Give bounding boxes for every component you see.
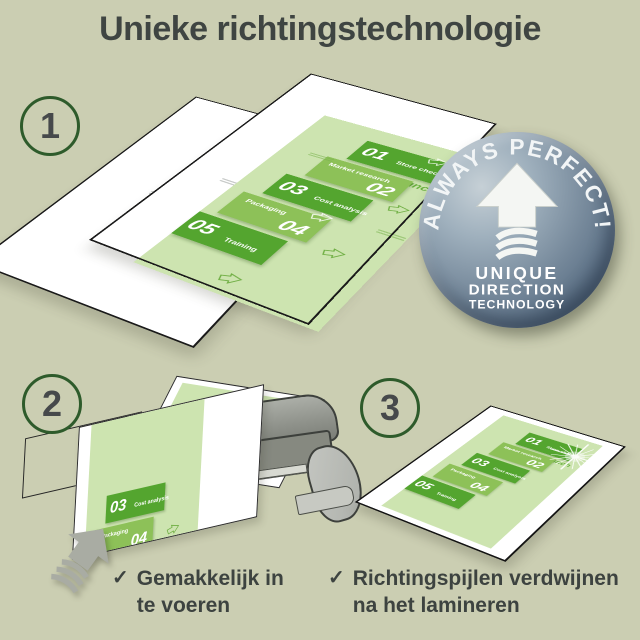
- always-perfect-badge: ALWAYS PERFECT! UNIQUE DIRECTION TECHNOL…: [419, 132, 615, 328]
- step-3-number: 3: [380, 387, 400, 429]
- project-flyer-laminated: Launch 01 Store check Market research 02…: [381, 415, 602, 548]
- badge-graphic: ALWAYS PERFECT! UNIQUE DIRECTION TECHNOL…: [419, 132, 615, 328]
- badge-line-direction: DIRECTION: [469, 282, 566, 299]
- step-2-number-badge: 2: [22, 374, 82, 434]
- step-1-number-badge: 1: [20, 96, 80, 156]
- step-2-number: 2: [42, 383, 62, 425]
- step-3-number-badge: 3: [360, 378, 420, 438]
- unique-direction-arrow-icon: [477, 163, 557, 257]
- badge-line-unique: UNIQUE: [475, 263, 558, 283]
- badge-line-technology: TECHNOLOGY: [469, 297, 565, 311]
- step-1-number: 1: [40, 105, 60, 147]
- laminator-direction-infographic: Unieke richtingstechnologie 1 Launch 01 …: [0, 0, 640, 640]
